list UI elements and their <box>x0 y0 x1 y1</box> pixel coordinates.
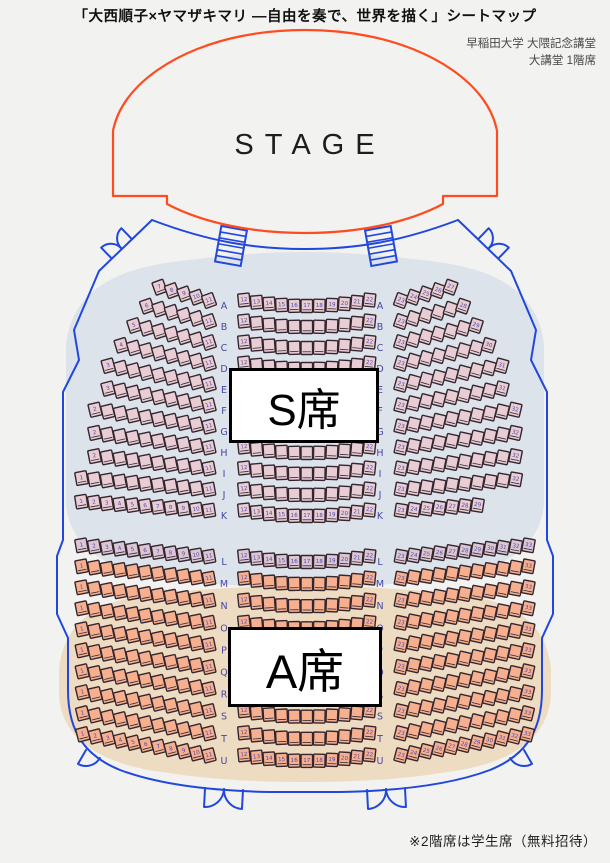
seat <box>189 724 203 739</box>
row-label-L: L <box>377 557 383 568</box>
seat <box>139 630 153 645</box>
row-label-P: P <box>221 645 227 656</box>
seat <box>458 587 472 602</box>
seat <box>151 566 165 581</box>
seat-number: 22 <box>366 553 374 560</box>
seat: 12 <box>238 748 251 762</box>
seat <box>445 411 459 426</box>
seat <box>164 698 178 713</box>
seat <box>139 365 154 381</box>
seat: 20 <box>338 553 350 567</box>
seat: 23 <box>394 593 408 608</box>
seat: 19 <box>326 508 338 521</box>
seat-number: 20 <box>341 301 349 307</box>
seat: 11 <box>202 419 216 434</box>
seat: 7 <box>151 739 165 754</box>
seat-number: 22 <box>366 486 374 493</box>
seat <box>288 467 300 480</box>
row-label-B: B <box>221 322 228 333</box>
seat <box>189 658 203 673</box>
seat <box>419 394 433 409</box>
seat <box>139 716 153 731</box>
seat <box>301 321 313 334</box>
seat-number: 22 <box>366 619 374 626</box>
seat <box>189 680 203 695</box>
seat <box>177 612 191 627</box>
seat <box>113 712 127 727</box>
seat: 23 <box>394 377 409 393</box>
seat-number: 12 <box>240 619 248 626</box>
seat <box>126 607 140 622</box>
row-label-N: N <box>220 601 227 612</box>
seat <box>458 630 472 645</box>
seat: 3 <box>101 381 115 396</box>
seat <box>189 702 203 717</box>
seat <box>189 460 203 475</box>
seat: 24 <box>406 746 420 761</box>
seat <box>508 665 522 680</box>
seat-number: 22 <box>366 444 374 451</box>
seat <box>483 563 497 578</box>
seat: 24 <box>407 502 420 517</box>
seat: 2 <box>88 425 102 440</box>
seat <box>496 450 510 465</box>
seat <box>470 714 484 729</box>
seat <box>126 585 140 600</box>
seat <box>470 671 484 686</box>
seat <box>263 486 275 500</box>
seat: 28 <box>457 737 471 752</box>
seat <box>457 651 471 666</box>
seat: 18 <box>313 754 325 767</box>
seat <box>138 608 152 623</box>
seat-number: 14 <box>265 557 273 563</box>
seat <box>483 451 497 466</box>
seat <box>313 599 325 612</box>
seat-number: 26 <box>435 504 443 511</box>
seat: 23 <box>394 571 408 586</box>
seat: 26 <box>433 546 447 561</box>
seat <box>263 730 275 744</box>
seat-number: 22 <box>366 708 374 715</box>
seat: 5 <box>126 498 139 513</box>
seat <box>444 389 458 404</box>
seat: 23 <box>394 398 408 413</box>
seat <box>483 648 497 663</box>
seat: 3 <box>101 731 115 746</box>
seat <box>126 475 140 490</box>
seat: 11 <box>202 571 216 586</box>
seat: 1 <box>75 622 89 637</box>
seat <box>88 602 102 617</box>
seat <box>420 591 434 606</box>
seat-number: 16 <box>291 559 299 565</box>
seat <box>250 337 263 351</box>
seat <box>420 480 434 495</box>
seat <box>419 722 433 737</box>
seat <box>445 631 459 646</box>
seat <box>419 678 433 693</box>
a-section-label-box: A席 <box>228 627 382 707</box>
seat: 32 <box>508 425 522 440</box>
seat-number: 32 <box>512 543 520 550</box>
seat <box>100 427 114 442</box>
seat <box>189 614 203 629</box>
seat-number: 15 <box>278 302 286 308</box>
seat: 23 <box>394 461 408 476</box>
seat <box>101 688 115 703</box>
seat <box>301 710 313 723</box>
seat: 23 <box>394 659 408 674</box>
seat <box>113 429 127 444</box>
seat <box>483 584 497 599</box>
seat <box>445 456 459 471</box>
seat <box>457 410 471 425</box>
seat: 22 <box>363 593 376 607</box>
row-label-S: S <box>377 712 383 723</box>
seat: 17 <box>301 300 313 313</box>
seat: 18 <box>313 509 325 522</box>
seat: 16 <box>288 754 300 767</box>
seat: 2 <box>88 729 102 744</box>
seat-number: 29 <box>474 502 482 509</box>
seat <box>407 438 421 453</box>
seat: 29 <box>471 498 484 513</box>
seat <box>101 667 115 682</box>
seat <box>420 458 434 473</box>
seat: 12 <box>238 593 251 607</box>
seat <box>313 710 325 723</box>
seat: 24 <box>407 548 421 563</box>
seat <box>496 625 510 640</box>
seat: 9 <box>177 547 191 562</box>
seat <box>276 487 288 500</box>
seat <box>496 427 510 442</box>
seat-number: 12 <box>240 597 248 604</box>
seat: 1 <box>75 471 89 486</box>
seat: 25 <box>420 547 434 562</box>
seat <box>177 722 191 737</box>
seat <box>407 417 421 432</box>
seat: 12 <box>238 503 251 517</box>
seat <box>313 467 325 480</box>
seat: 1 <box>75 559 89 574</box>
row-label-J: J <box>378 490 382 501</box>
door <box>78 750 100 772</box>
seat: 13 <box>250 295 263 309</box>
seat <box>276 576 288 589</box>
seat: 6 <box>139 499 152 514</box>
seat: 33 <box>521 580 535 595</box>
seat: 22 <box>363 503 376 517</box>
seat <box>432 633 446 648</box>
seat <box>126 453 140 468</box>
seat <box>164 370 179 386</box>
s-section-label-box: S席 <box>229 368 379 443</box>
seat-number: 15 <box>278 757 286 763</box>
seat: 5 <box>126 735 140 750</box>
seat <box>113 605 127 620</box>
seat <box>419 700 433 715</box>
seat <box>88 581 102 596</box>
seat <box>126 363 141 379</box>
seat <box>351 728 364 742</box>
seat <box>495 667 509 682</box>
seat <box>406 396 420 411</box>
seat-number: 17 <box>303 303 311 309</box>
seat: 11 <box>202 461 216 476</box>
seat <box>100 450 114 465</box>
seat <box>445 609 459 624</box>
seat <box>126 408 140 423</box>
seat <box>250 728 263 742</box>
seat-number: 12 <box>240 752 248 759</box>
seat: 1 <box>75 706 89 721</box>
seat <box>151 653 165 668</box>
seat <box>445 674 459 689</box>
seat: 33 <box>521 643 535 658</box>
seat <box>164 413 178 428</box>
seat <box>470 649 484 664</box>
seat <box>445 566 459 581</box>
seat-number: 12 <box>240 297 248 304</box>
seat <box>177 634 191 649</box>
seat-number: 22 <box>366 730 374 737</box>
seat <box>326 576 338 589</box>
seat <box>432 611 446 626</box>
seat: 10 <box>190 502 203 517</box>
seat: 8 <box>164 500 177 515</box>
seat: 21 <box>351 295 364 309</box>
seat: 14 <box>263 553 275 567</box>
seat <box>495 688 509 703</box>
seat <box>338 730 350 744</box>
seat <box>113 563 127 578</box>
seat <box>189 374 204 390</box>
seat: 25 <box>420 501 433 516</box>
seat: 33 <box>522 559 536 574</box>
seat <box>496 583 510 598</box>
seat <box>407 636 421 651</box>
seat <box>326 598 338 611</box>
seat-number: 18 <box>316 758 324 764</box>
seat <box>126 385 140 400</box>
seat <box>88 623 102 638</box>
seat: 22 <box>363 461 376 475</box>
seat: 5 <box>126 542 140 557</box>
seat-number: 18 <box>316 513 324 519</box>
seat: 31 <box>494 358 509 374</box>
seat <box>138 432 152 447</box>
seat <box>338 318 350 332</box>
seat: 31 <box>495 731 509 746</box>
row-label-I: I <box>223 469 226 480</box>
seat <box>351 442 364 456</box>
seat <box>458 608 472 623</box>
door <box>510 750 532 772</box>
row-label-J: J <box>222 490 226 501</box>
seat: 8 <box>164 741 178 756</box>
seat: 12 <box>238 293 251 307</box>
seat <box>276 319 288 332</box>
seat <box>276 340 288 353</box>
seat <box>483 474 497 489</box>
seat <box>151 367 166 383</box>
seat-number: 18 <box>316 559 324 565</box>
seat <box>444 696 458 711</box>
seat-number: 13 <box>253 509 261 516</box>
seat: 23 <box>394 681 408 696</box>
seat-number: 21 <box>353 754 361 761</box>
seat: 33 <box>521 601 535 616</box>
seat: 1 <box>75 601 89 616</box>
seat <box>326 445 338 458</box>
seat-number: 13 <box>253 754 261 761</box>
seat <box>338 339 350 353</box>
seat <box>326 709 338 722</box>
seat: 30 <box>482 733 496 748</box>
seat <box>407 570 421 585</box>
seat <box>457 432 471 447</box>
seat <box>471 564 485 579</box>
seat <box>288 446 300 459</box>
seat <box>100 473 114 488</box>
seat <box>164 654 178 669</box>
seat <box>432 413 446 428</box>
seat <box>164 611 178 626</box>
seat <box>407 592 421 607</box>
seat <box>407 460 421 475</box>
seat <box>407 702 421 717</box>
seat <box>483 429 497 444</box>
seat-number: 19 <box>328 558 336 564</box>
seat: 11 <box>202 398 216 413</box>
seat <box>250 463 263 477</box>
seat: 33 <box>520 706 534 721</box>
seat <box>457 694 471 709</box>
seat <box>164 457 178 472</box>
seat <box>113 648 127 663</box>
seat: 12 <box>238 571 251 585</box>
seat: 1 <box>75 685 89 700</box>
seat <box>458 476 472 491</box>
seat <box>470 692 484 707</box>
seat <box>432 435 446 450</box>
seat-number: 16 <box>291 758 299 764</box>
seat <box>263 465 275 479</box>
stage-label: STAGE <box>10 129 610 162</box>
seat <box>288 599 300 612</box>
seat: 3 <box>101 358 116 374</box>
seat <box>263 597 275 611</box>
seat: 12 <box>238 482 251 496</box>
seat <box>509 560 523 575</box>
seat <box>432 567 446 582</box>
seat: 15 <box>276 298 288 311</box>
seat <box>313 732 325 745</box>
seat <box>177 480 191 495</box>
seat <box>470 430 484 445</box>
seat <box>250 442 263 456</box>
seat <box>88 644 102 659</box>
seat <box>338 444 350 458</box>
seat <box>326 340 338 353</box>
seat <box>431 370 446 386</box>
seat: 23 <box>394 503 407 518</box>
seat: 28 <box>458 499 471 514</box>
seat <box>126 564 140 579</box>
seat <box>407 658 421 673</box>
hall-front-wall <box>152 220 458 249</box>
seat <box>508 644 522 659</box>
seat <box>177 394 191 409</box>
row-label-I: I <box>379 469 382 480</box>
seat-number: 21 <box>353 299 361 306</box>
seat <box>189 438 203 453</box>
seat <box>482 360 497 376</box>
seat: 22 <box>363 335 376 349</box>
seat: 13 <box>250 750 263 764</box>
seat-number: 22 <box>366 597 374 604</box>
seat: 17 <box>301 510 313 523</box>
seat: 33 <box>520 685 534 700</box>
seat <box>189 592 203 607</box>
seat-number: 28 <box>461 503 469 510</box>
seat <box>87 560 101 575</box>
seat: 11 <box>202 748 216 763</box>
seat <box>139 410 153 425</box>
seat: 2 <box>87 495 100 510</box>
seat-number: 12 <box>240 444 248 451</box>
seat: 20 <box>338 752 350 766</box>
seat <box>138 651 152 666</box>
seat <box>100 583 114 598</box>
seat <box>139 673 153 688</box>
seat <box>495 404 509 419</box>
seat-number: 32 <box>512 476 520 483</box>
seat <box>470 628 484 643</box>
seat: 32 <box>509 472 523 487</box>
seat: 13 <box>250 505 263 519</box>
seat: 23 <box>394 726 408 741</box>
seat <box>469 363 484 379</box>
seat: 29 <box>470 735 484 750</box>
seat: 27 <box>444 739 458 754</box>
seat-number: 13 <box>253 555 261 562</box>
seat: 21 <box>351 750 364 764</box>
seat <box>250 316 263 330</box>
s-section-label: S席 <box>267 374 340 438</box>
seat <box>407 614 421 629</box>
seat-number: 24 <box>410 506 418 513</box>
row-label-R: R <box>221 690 228 701</box>
row-label-A: A <box>221 301 228 312</box>
seat <box>164 633 178 648</box>
seat <box>338 465 350 479</box>
seat <box>276 445 288 458</box>
row-label-G: G <box>220 427 227 438</box>
seat <box>164 676 178 691</box>
seat <box>420 569 434 584</box>
seat <box>338 708 350 722</box>
seat <box>351 484 364 498</box>
seat <box>87 472 101 487</box>
seat: 11 <box>202 377 217 393</box>
seat <box>301 489 313 502</box>
seat <box>508 708 522 723</box>
row-label-T: T <box>220 734 227 745</box>
seat: 7 <box>151 500 164 515</box>
